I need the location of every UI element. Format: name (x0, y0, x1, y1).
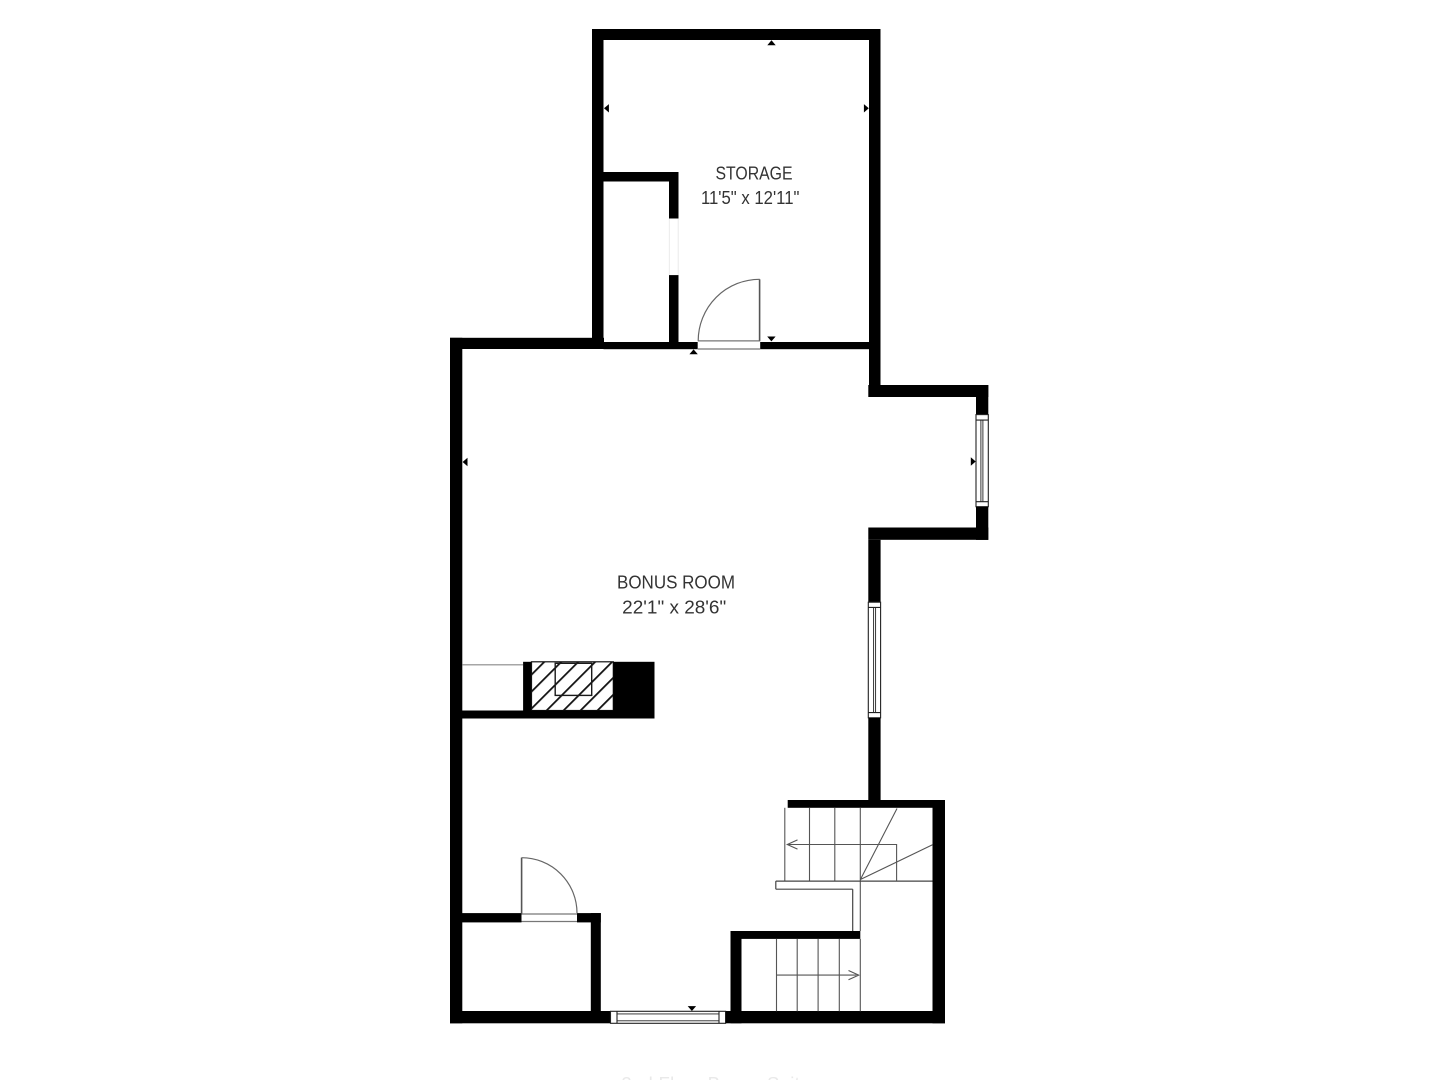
svg-text:2nd Floor Bonus Suite: 2nd Floor Bonus Suite (621, 1073, 810, 1080)
svg-text:STORAGE: STORAGE (716, 164, 793, 185)
svg-text:22'1" x 28'6": 22'1" x 28'6" (622, 598, 726, 619)
svg-text:BONUS ROOM: BONUS ROOM (617, 572, 735, 593)
svg-text:11'5" x 12'11": 11'5" x 12'11" (701, 188, 800, 209)
